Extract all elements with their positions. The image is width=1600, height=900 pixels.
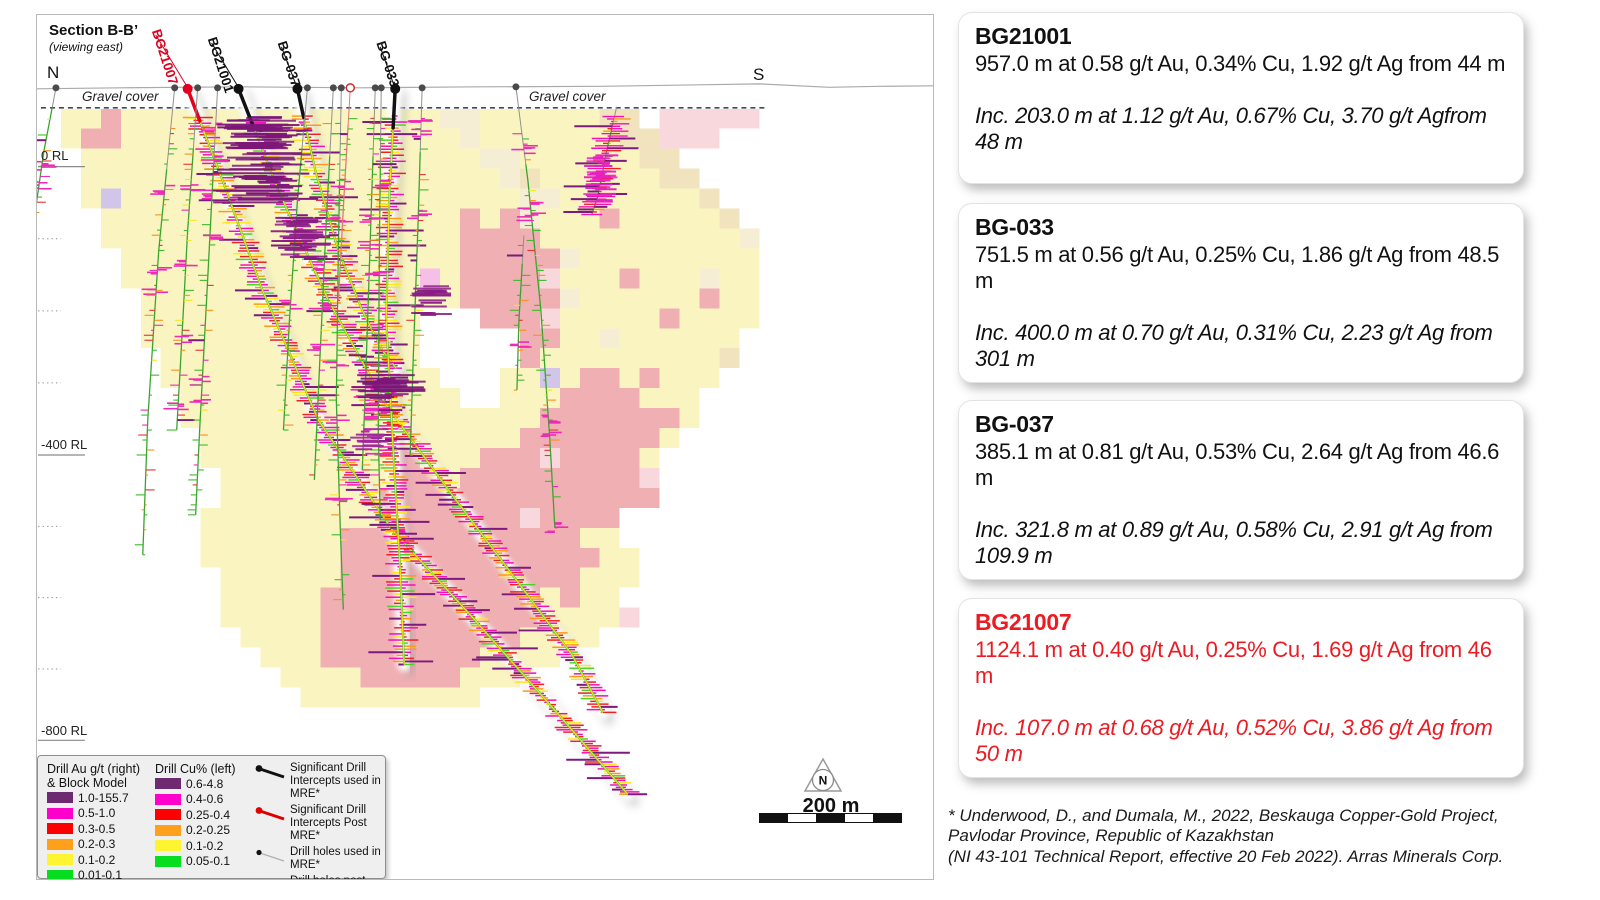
legend-cu-title: Drill Cu% (left) [155,762,251,776]
legend-au-column: Drill Au g/t (right) & Block Model 1.0-1… [47,762,151,880]
legend-cu-column: Drill Cu% (left) 0.6-4.80.4-0.60.25-0.40… [155,762,251,869]
collar-dot [214,84,221,91]
legend-range: 0.4-0.6 [186,792,223,806]
legend-cu-item: 0.4-0.6 [155,792,251,808]
callout-intercept: 957.0 m at 0.58 g/t Au, 0.34% Cu, 1.92 g… [975,51,1507,77]
rl-label-0: 0 RL [41,148,68,163]
legend-swatch [47,823,73,834]
collar-dot [183,84,193,94]
callout-bg-037: BG-037 385.1 m at 0.81 g/t Au, 0.53% Cu,… [958,400,1524,580]
legend-symbol-label: Drill holes used in MRE* [290,846,382,872]
legend-au-item: 0.2-0.3 [47,837,151,853]
legend-au-item: 1.0-155.7 [47,790,151,806]
legend-symbol-item: Drill holes used in MRE* [254,846,382,872]
legend-au-item: 0.5-1.0 [47,806,151,822]
legend-swatch [155,778,181,789]
footnote-line: Pavlodar Province, Republic of Kazakhsta… [948,826,1526,846]
callout-included-intercept: Inc. 321.8 m at 0.89 g/t Au, 0.58% Cu, 2… [975,517,1507,569]
legend-au-title2: & Block Model [47,776,151,790]
legend-au-title: Drill Au g/t (right) [47,762,151,776]
footnote-line: * Underwood, D., and Dumala, M., 2022, B… [948,806,1526,826]
legend-symbol-label: Significant Drill Intercepts Post MRE* [290,804,382,843]
legend-cu-item: 0.25-0.4 [155,807,251,823]
legend-range: 0.2-0.3 [78,837,115,851]
screenshot-root: BG21007BG21001BG-037BG-033 Section B-B’ … [0,0,1600,900]
drill-symbol-icon [254,764,290,780]
legend-symbol-item: Significant Drill Intercepts Post MRE* [254,804,382,843]
gravel-cover-label-right: Gravel cover [529,89,606,104]
legend-au-item: 0.01-0.1 [47,868,151,881]
drill-symbol-icon [254,848,290,864]
callout-included-intercept: Inc. 107.0 m at 0.68 g/t Au, 0.52% Cu, 3… [975,715,1507,767]
collar-ring-dot [346,84,354,92]
hole-label-BG-033: BG-033 [373,39,402,88]
legend-cu-item: 0.1-0.2 [155,838,251,854]
rl-label-800: -800 RL [41,723,87,738]
legend: Drill Au g/t (right) & Block Model 1.0-1… [37,755,386,879]
hole-label-BG21007: BG21007 [149,27,181,86]
legend-swatch [47,854,73,865]
collar-dot [171,84,178,91]
collar-dot [304,84,311,91]
callout-hole-name: BG-033 [975,214,1507,241]
drill-symbol-icon [254,806,290,822]
scalebar-segment [816,814,844,822]
legend-cu-item: 0.2-0.25 [155,823,251,839]
drill-symbol-icon [254,877,290,880]
legend-range: 0.1-0.2 [78,853,115,867]
scalebar-segment [873,814,901,822]
legend-range: 0.05-0.1 [186,854,230,868]
legend-swatch [47,808,73,819]
legend-swatch [155,825,181,836]
scalebar-segment [788,814,816,822]
svg-text:N: N [819,774,828,788]
legend-symbol-item: Significant Drill Intercepts used in MRE… [254,762,382,801]
footnote-line: (NI 43-101 Technical Report, effective 2… [948,847,1526,867]
legend-symbol-label: Significant Drill Intercepts used in MRE… [290,762,382,801]
callout-hole-name: BG-037 [975,411,1507,438]
legend-swatch [47,792,73,803]
section-title: Section B-B’ [49,22,138,39]
legend-swatch [155,794,181,805]
legend-swatch [155,856,181,867]
legend-swatch [155,840,181,851]
legend-swatch [47,870,73,880]
gravel-cover-label-left: Gravel cover [82,89,159,104]
callout-bg-033: BG-033 751.5 m at 0.56 g/t Au, 0.25% Cu,… [958,203,1524,383]
collar-dot [330,84,337,91]
callout-intercept: 1124.1 m at 0.40 g/t Au, 0.25% Cu, 1.69 … [975,637,1507,689]
legend-symbol-label: Drill holes post MRE* [290,875,382,880]
collar-dot [419,84,426,91]
callout-intercept: 385.1 m at 0.81 g/t Au, 0.53% Cu, 2.64 g… [975,439,1507,491]
callout-hole-name: BG21001 [975,23,1507,50]
legend-range: 0.5-1.0 [78,806,115,820]
hole-label-BG21001: BG21001 [205,35,237,95]
legend-swatch [155,809,181,820]
legend-symbols-column: Significant Drill Intercepts used in MRE… [254,762,382,880]
collar-dot [378,84,385,91]
legend-range: 0.3-0.5 [78,822,115,836]
collar-dot [194,84,201,91]
legend-range: 0.1-0.2 [186,839,223,853]
reference-footnote: * Underwood, D., and Dumala, M., 2022, B… [948,806,1526,867]
legend-range: 0.25-0.4 [186,808,230,822]
rl-label-400: -400 RL [41,437,87,452]
north-end-label: N [47,63,59,83]
scalebar [759,813,902,823]
scalebar-segment [760,814,788,822]
legend-range: 1.0-155.7 [78,791,129,805]
north-arrow-icon: N [801,757,845,795]
collar-dot [52,84,59,91]
callout-included-intercept: Inc. 400.0 m at 0.70 g/t Au, 0.31% Cu, 2… [975,320,1507,372]
legend-range: 0.01-0.1 [78,868,122,880]
legend-au-item: 0.1-0.2 [47,852,151,868]
callout-intercept: 751.5 m at 0.56 g/t Au, 0.25% Cu, 1.86 g… [975,242,1507,294]
callout-hole-name: BG21007 [975,609,1507,636]
callout-included-intercept: Inc. 203.0 m at 1.12 g/t Au, 0.67% Cu, 3… [975,103,1507,155]
legend-au-item: 0.3-0.5 [47,821,151,837]
callout-bg21001: BG21001 957.0 m at 0.58 g/t Au, 0.34% Cu… [958,12,1524,184]
legend-range: 0.2-0.25 [186,823,230,837]
legend-range: 0.6-4.8 [186,777,223,791]
callout-bg21007: BG21007 1124.1 m at 0.40 g/t Au, 0.25% C… [958,598,1524,778]
section-subtitle: (viewing east) [49,40,123,54]
legend-swatch [47,839,73,850]
legend-symbol-item: Drill holes post MRE* [254,875,382,880]
hole-label-BG-037: BG-037 [275,39,304,88]
collar-dot [338,84,345,91]
legend-cu-item: 0.6-4.8 [155,776,251,792]
collar-dot [512,83,519,90]
scalebar-segment [845,814,873,822]
collar-dot [372,84,379,91]
section-graphic: BG21007BG21001BG-037BG-033 [37,15,933,879]
section-panel: BG21007BG21001BG-037BG-033 Section B-B’ … [36,14,934,880]
south-end-label: S [753,65,764,85]
legend-cu-item: 0.05-0.1 [155,854,251,870]
